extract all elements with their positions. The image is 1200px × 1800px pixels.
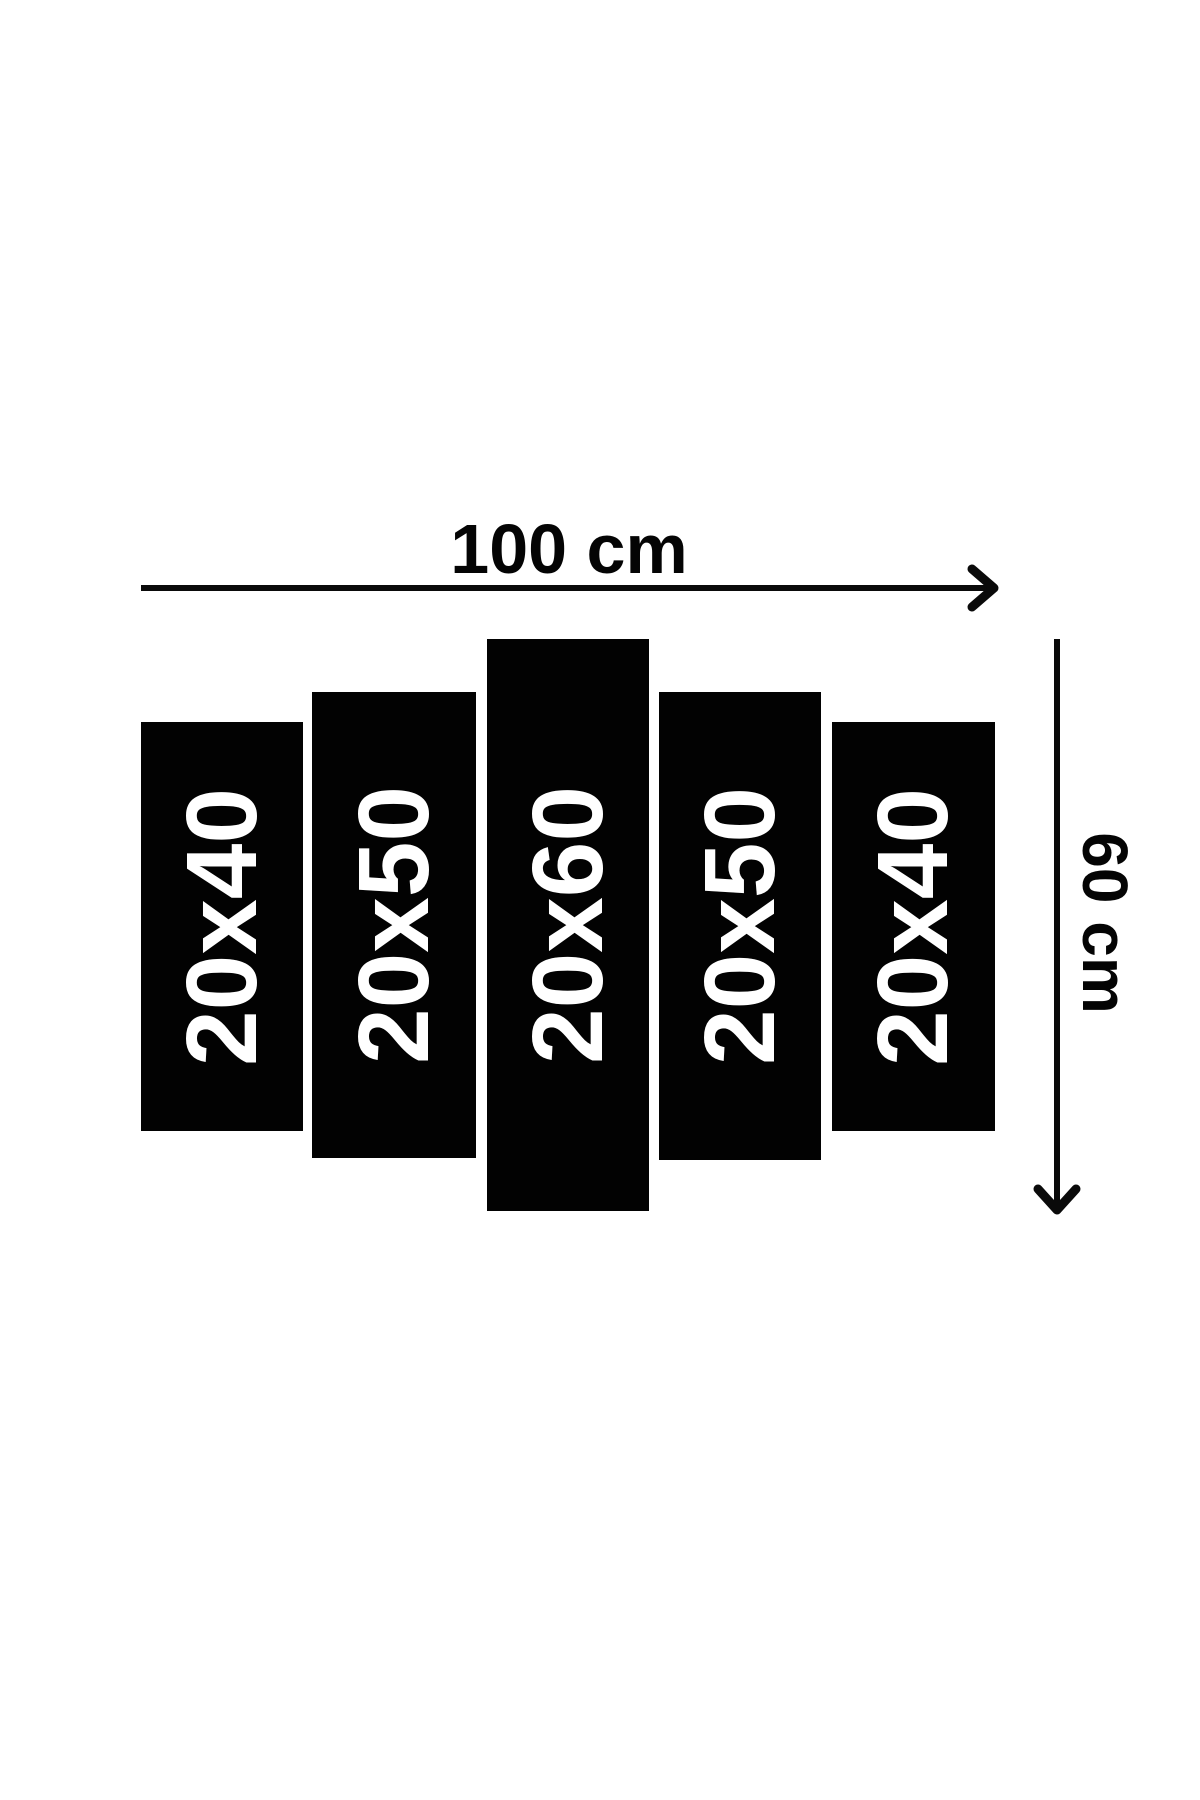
panel-5-20x40: 20x40 bbox=[832, 722, 995, 1131]
panel-1-20x40: 20x40 bbox=[141, 722, 303, 1131]
total-height-label: 60 cm bbox=[1073, 832, 1137, 1013]
panel-4-size-label: 20x50 bbox=[690, 787, 790, 1065]
size-guide-diagram: 100 cm 60 cm 20x40 20x50 20x60 20x50 20x… bbox=[0, 0, 1200, 1800]
panel-2-20x50: 20x50 bbox=[312, 692, 476, 1158]
total-width-label: 100 cm bbox=[419, 514, 719, 584]
panel-2-size-label: 20x50 bbox=[344, 786, 444, 1064]
panel-3-size-label: 20x60 bbox=[518, 786, 618, 1064]
panel-1-size-label: 20x40 bbox=[172, 787, 272, 1065]
panel-4-20x50: 20x50 bbox=[659, 692, 821, 1160]
panel-3-20x60: 20x60 bbox=[487, 639, 649, 1211]
panel-5-size-label: 20x40 bbox=[864, 787, 964, 1065]
